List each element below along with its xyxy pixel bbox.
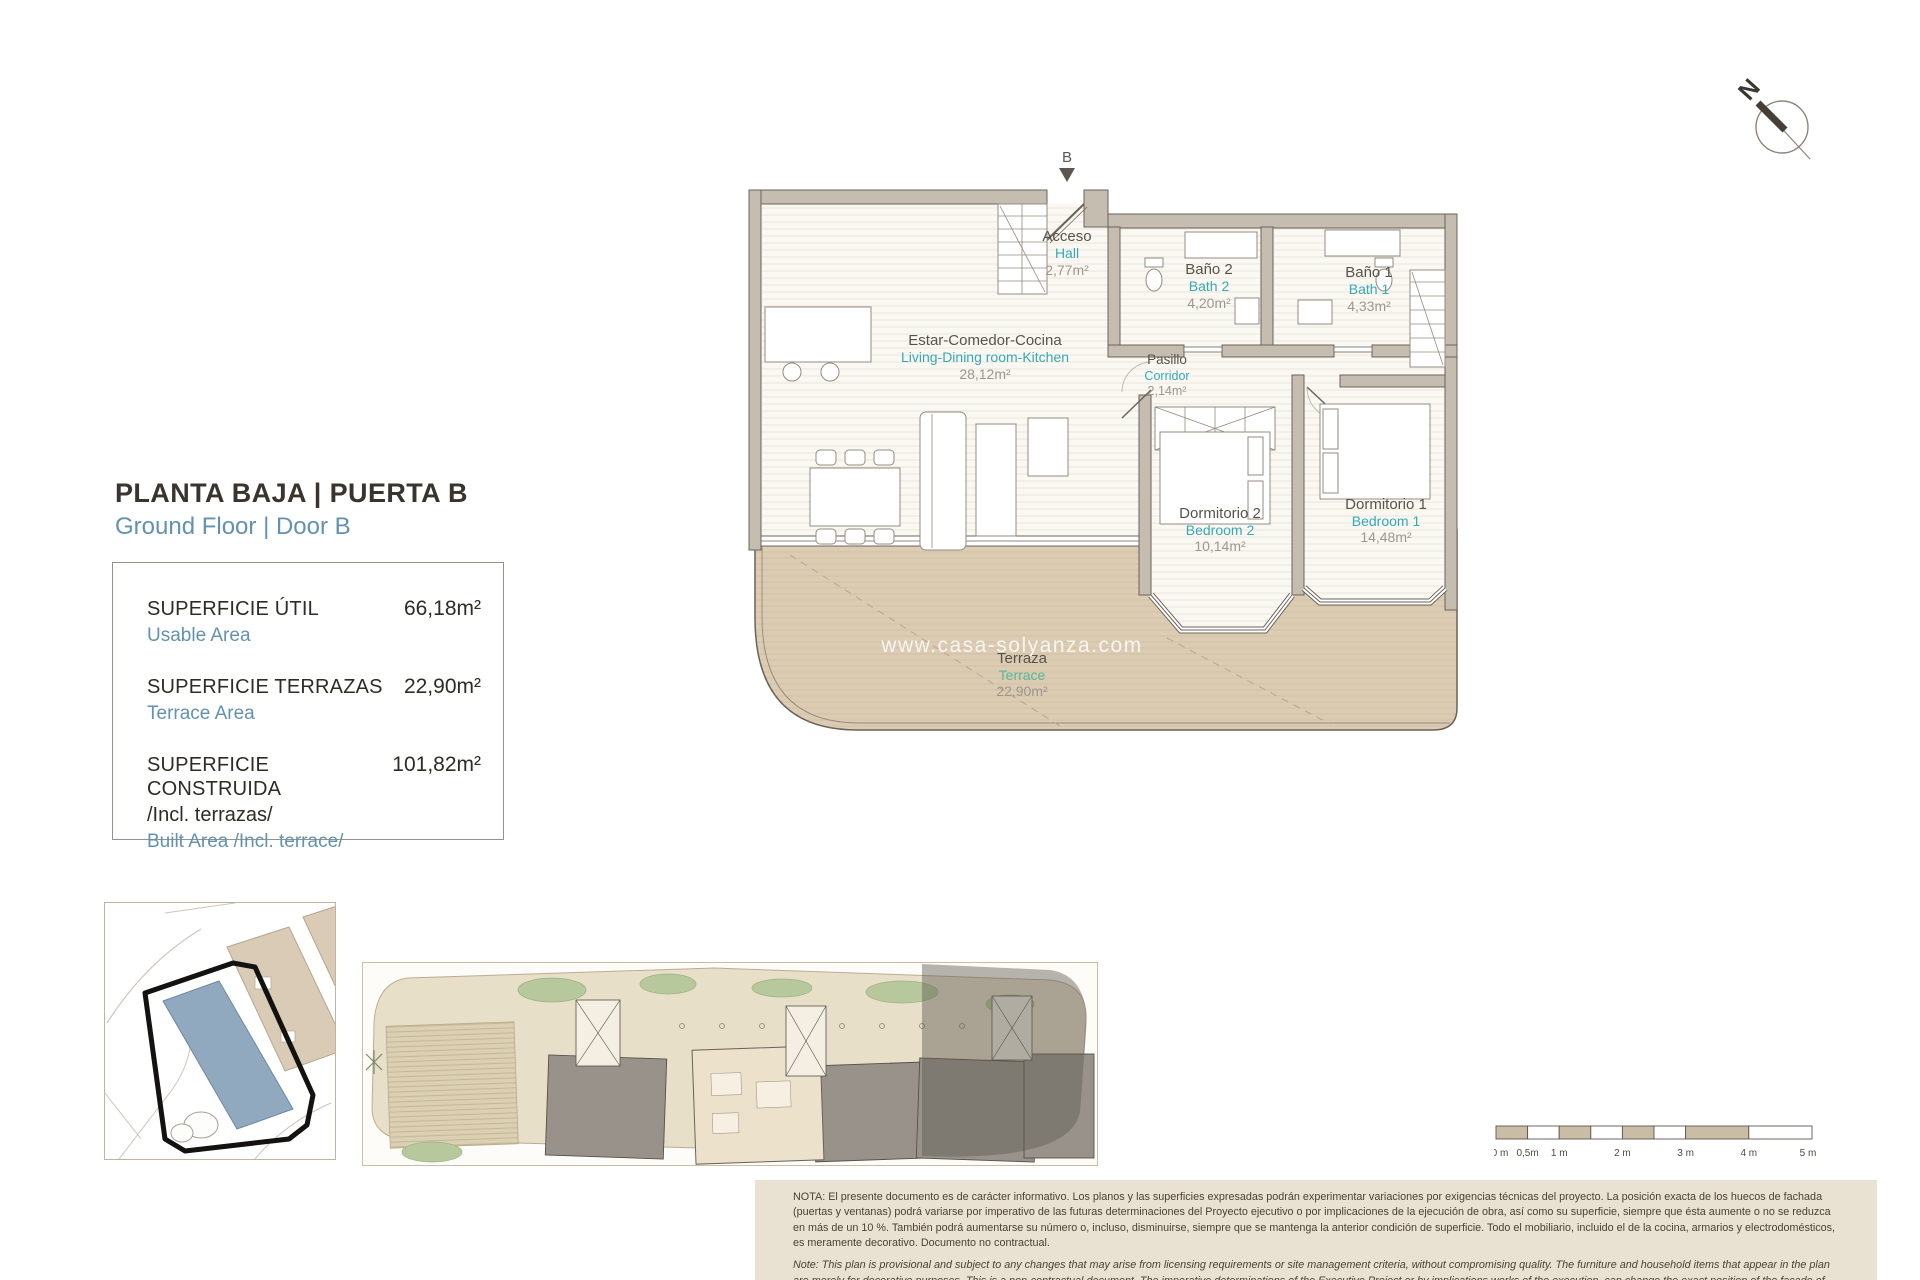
legal-note-panel: NOTA: El presente documento es de caráct…	[755, 1180, 1877, 1280]
usable-area-label-es: SUPERFICIE ÚTIL	[147, 597, 319, 621]
room-label-bath2: Baño 2 Bath 2 4,20m²	[1185, 261, 1233, 311]
room-name-es: Terraza	[997, 650, 1048, 667]
scale-tick-0: 0 m	[1494, 1148, 1508, 1159]
room-name-es: Estar-Comedor-Cocina	[908, 332, 1062, 349]
built-area-label-en: Built Area /Incl. terrace/	[147, 831, 384, 854]
room-area: 4,20m²	[1187, 295, 1231, 311]
entrance-marker: B	[1059, 149, 1075, 182]
location-mini-map	[104, 902, 336, 1160]
entrance-letter: B	[1062, 149, 1072, 166]
title-block: PLANTA BAJA | PUERTA B Ground Floor | Do…	[115, 478, 468, 541]
room-area: 4,33m²	[1347, 298, 1391, 314]
built-area-label-es: SUPERFICIE CONSTRUIDA	[147, 753, 384, 801]
room-name-es: Baño 1	[1345, 264, 1393, 281]
usable-area-label-en: Usable Area	[147, 625, 319, 648]
room-name-en: Bedroom 2	[1186, 522, 1255, 538]
scale-tick-05: 0,5m	[1516, 1148, 1538, 1159]
room-label-terrace: Terraza Terrace 22,90m²	[996, 650, 1048, 699]
terrace-area-label-es: SUPERFICIE TERRAZAS	[147, 675, 383, 699]
room-name-en: Bedroom 1	[1352, 513, 1421, 529]
built-area-row: SUPERFICIE CONSTRUIDA /Incl. terrazas/ B…	[147, 753, 481, 854]
scale-tick-3: 3 m	[1677, 1148, 1694, 1159]
room-name-es: Dormitorio 1	[1345, 496, 1427, 513]
room-area: 22,90m²	[996, 683, 1048, 699]
terrace-area-row: SUPERFICIE TERRAZAS Terrace Area 22,90m²	[147, 675, 481, 726]
scale-tick-2: 2 m	[1614, 1148, 1631, 1159]
room-name-es: Baño 2	[1185, 261, 1233, 278]
room-area: 28,12m²	[959, 366, 1011, 382]
scale-tick-1: 1 m	[1551, 1148, 1568, 1159]
room-name-en: Corridor	[1144, 369, 1189, 383]
floorplan-sheet: N	[0, 0, 1920, 1280]
room-name-en: Living-Dining room-Kitchen	[901, 349, 1069, 365]
page-title: PLANTA BAJA | PUERTA B	[115, 478, 468, 509]
room-name-es: Acceso	[1042, 228, 1091, 245]
built-area-value: 101,82m²	[384, 753, 481, 854]
site-plan-overview	[362, 962, 1098, 1166]
room-label-bath1: Baño 1 Bath 1 4,33m²	[1345, 264, 1393, 314]
page-subtitle: Ground Floor | Door B	[115, 513, 468, 541]
room-name-en: Bath 2	[1189, 278, 1230, 294]
note-english: Note: This plan is provisional and subje…	[793, 1258, 1839, 1280]
surface-info-box: SUPERFICIE ÚTIL Usable Area 66,18m² SUPE…	[112, 562, 504, 840]
room-name-en: Terrace	[999, 667, 1046, 683]
room-name-en: Hall	[1055, 245, 1079, 261]
room-area: 2,77m²	[1045, 262, 1089, 278]
usable-area-row: SUPERFICIE ÚTIL Usable Area 66,18m²	[147, 597, 481, 648]
built-area-label-es2: /Incl. terrazas/	[147, 803, 384, 827]
apartment-floorplan: B www.casa-solyanza.com Acceso Hall 2,77…	[730, 140, 1510, 805]
terrace-area-label-en: Terrace Area	[147, 703, 383, 726]
scale-tick-4: 4 m	[1740, 1148, 1757, 1159]
scale-bar: 0 m 0,5m 1 m 2 m 3 m 4 m 5 m	[1494, 1124, 1816, 1169]
usable-area-value: 66,18m²	[396, 597, 481, 648]
room-area: 2,14m²	[1148, 384, 1187, 398]
room-name-en: Bath 1	[1349, 281, 1390, 297]
north-arrow-icon: N	[1728, 55, 1838, 175]
room-label-corridor: Pasillo Corridor 2,14m²	[1144, 352, 1189, 398]
room-name-es: Dormitorio 2	[1179, 505, 1261, 522]
room-name-es: Pasillo	[1147, 352, 1187, 367]
note-spanish: NOTA: El presente documento es de caráct…	[793, 1190, 1839, 1251]
scale-tick-5: 5 m	[1800, 1148, 1816, 1159]
room-area: 10,14m²	[1194, 538, 1246, 554]
room-area: 14,48m²	[1360, 529, 1412, 545]
terrace-area-value: 22,90m²	[396, 675, 481, 726]
site-plan-shade	[922, 964, 1086, 1157]
